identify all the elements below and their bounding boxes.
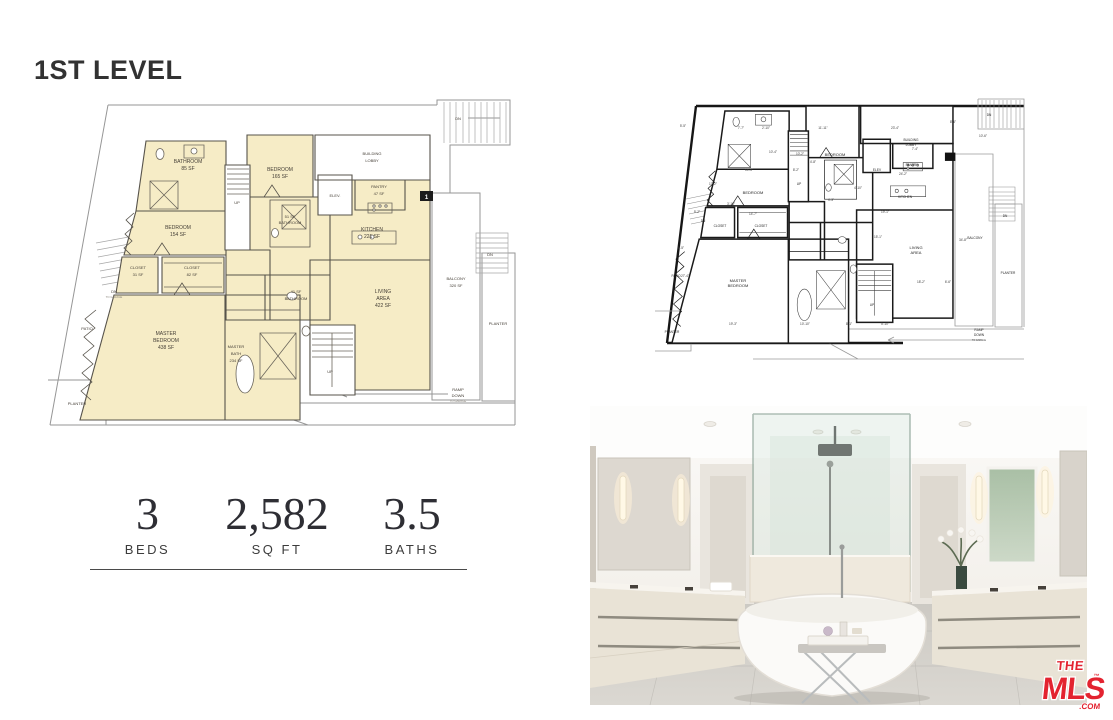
dimension-label: 24'-2" [899, 172, 907, 176]
svg-text:BATHROOM: BATHROOM [285, 296, 308, 301]
dimension-label: 6'-6" [945, 280, 951, 284]
sqft-value: 2,582 [198, 490, 356, 538]
floorplan-first-level: BATHROOM 85 SF BEDROOM 165 SF BEDROOM 15… [38, 93, 533, 468]
dimension-label: 8'-6" [950, 120, 956, 124]
stat-baths: 3.5 BATHS [352, 490, 472, 557]
svg-text:PLANTER: PLANTER [665, 330, 680, 334]
dimension-label: 4'-10" [854, 186, 862, 190]
dimension-label: 14'-7" [749, 212, 757, 216]
beds-label: BEDS [90, 542, 205, 557]
svg-text:TO GARAGE: TO GARAGE [972, 339, 987, 342]
baths-label: BATHS [352, 542, 472, 557]
svg-text:UP: UP [870, 303, 874, 307]
towel [710, 582, 732, 591]
dimension-label: 5'-10" [881, 322, 889, 326]
svg-text:PATIO: PATIO [671, 274, 681, 278]
svg-text:AREA: AREA [376, 296, 390, 302]
svg-text:154 SF: 154 SF [170, 232, 186, 238]
window [988, 468, 1036, 563]
svg-text:PANTRY: PANTRY [906, 163, 920, 167]
dimension-label: 5'-2" [694, 210, 700, 214]
beds-value: 3 [90, 490, 205, 538]
right-mirror [1060, 451, 1087, 576]
svg-text:CLOSET: CLOSET [714, 224, 727, 228]
dimension-label: 8'-2" [793, 168, 799, 172]
svg-text:DN: DN [487, 252, 493, 257]
tub-rim [746, 597, 918, 623]
svg-text:DN: DN [987, 113, 992, 117]
divider-line [90, 569, 467, 570]
sqft-label: SQ FT [198, 542, 356, 557]
left-doorway-inner [710, 476, 746, 598]
svg-text:KITCHEN: KITCHEN [361, 227, 383, 233]
svg-text:BUILDING: BUILDING [363, 151, 382, 156]
stat-beds: 3 BEDS [90, 490, 205, 557]
svg-text:CLOSET: CLOSET [755, 224, 768, 228]
svg-text:PLANTER: PLANTER [68, 401, 87, 406]
svg-text:ELEV: ELEV [873, 168, 882, 172]
svg-text:BEDROOM: BEDROOM [267, 167, 293, 173]
svg-text:MASTER: MASTER [156, 331, 177, 337]
svg-text:RAMP: RAMP [974, 328, 983, 332]
svg-text:BATHROOM: BATHROOM [279, 220, 302, 225]
dimension-label: 8'-5" [678, 246, 684, 250]
baths-value: 3.5 [352, 490, 472, 538]
svg-text:BUILDING: BUILDING [903, 138, 919, 142]
dimension-label: 19'-3" [729, 322, 737, 326]
svg-text:BEDROOM: BEDROOM [728, 283, 749, 288]
dimension-label: 10'-4" [769, 150, 777, 154]
svg-text:PATIO: PATIO [81, 326, 92, 331]
dimension-label: 7'-7" [738, 126, 744, 130]
svg-text:RAMP: RAMP [452, 387, 464, 392]
svg-text:DN: DN [1003, 214, 1008, 218]
logo-tm: ™ [1093, 673, 1100, 680]
svg-text:320 SF: 320 SF [450, 283, 463, 288]
svg-text:KITCHEN: KITCHEN [898, 195, 913, 199]
svg-text:DN: DN [701, 219, 706, 223]
dimension-label: 14'-5" [745, 168, 753, 172]
svg-text:234 SF: 234 SF [230, 358, 243, 363]
svg-text:PLANTER: PLANTER [489, 321, 508, 326]
svg-text:AREA: AREA [911, 250, 922, 255]
page-title: 1ST LEVEL [34, 55, 183, 86]
svg-text:UP: UP [797, 182, 801, 186]
svg-text:BEDROOM: BEDROOM [165, 225, 191, 231]
svg-text:ELEV.: ELEV. [330, 193, 341, 198]
svg-text:BEDROOM: BEDROOM [743, 190, 764, 195]
dimension-label: 4'-8" [810, 160, 816, 164]
svg-text:BALCONY: BALCONY [446, 276, 465, 281]
floorplan-technical: 5'-5"7'-7"2'-10"11'-11"23'-4"8'-6"10'-6"… [653, 93, 1050, 380]
dimension-label: 4'-3" [828, 198, 834, 202]
svg-text:165 SF: 165 SF [272, 174, 288, 180]
dimension-label: 8'-1" [846, 322, 852, 326]
svg-text:51 SF: 51 SF [285, 214, 296, 219]
svg-text:CLOSET: CLOSET [130, 265, 147, 270]
dimension-label: 15'-1" [874, 235, 882, 239]
svg-text:LIVING: LIVING [375, 289, 392, 295]
svg-text:DN: DN [455, 116, 461, 121]
svg-text:41 SF: 41 SF [291, 289, 302, 294]
listing-sheet: 1ST LEVEL [0, 0, 1113, 720]
rain-shower-head [818, 444, 852, 456]
svg-text:47 SF: 47 SF [374, 191, 385, 196]
svg-text:31 SF: 31 SF [133, 272, 144, 277]
dimension-label: 5'-5" [680, 124, 686, 128]
unit-walls [80, 135, 433, 420]
svg-text:TO GARAGE: TO GARAGE [450, 399, 467, 403]
svg-text:BATHROOM: BATHROOM [174, 159, 203, 165]
svg-text:PLANTER: PLANTER [1001, 271, 1016, 275]
dimension-label: 7'-4" [912, 147, 918, 151]
svg-text:UP: UP [234, 200, 240, 205]
svg-text:TO GARAGE: TO GARAGE [106, 295, 123, 299]
svg-text:422 SF: 422 SF [375, 303, 391, 309]
svg-text:DOWN: DOWN [452, 393, 465, 398]
svg-text:85 SF: 85 SF [181, 166, 194, 172]
bathroom-photo [590, 406, 1087, 705]
svg-text:82 SF: 82 SF [187, 272, 198, 277]
svg-text:BALCONY: BALCONY [967, 236, 983, 240]
svg-text:DN: DN [111, 289, 117, 294]
svg-text:BEDROOM: BEDROOM [153, 338, 179, 344]
dimension-label: 19'-1" [881, 210, 889, 214]
dimension-label: 10'-2" [796, 152, 804, 156]
svg-text:PANTRY: PANTRY [371, 184, 387, 189]
svg-text:DOWN: DOWN [974, 333, 985, 337]
svg-text:MASTER: MASTER [228, 344, 245, 349]
svg-text:BEDROOM: BEDROOM [825, 152, 846, 157]
dimension-label: 10'-10" [800, 322, 810, 326]
dimension-label: 27'-4" [681, 274, 689, 278]
svg-text:BATH: BATH [231, 351, 241, 356]
dimension-label: 18'-2" [917, 280, 925, 284]
dimension-label: 2'-10" [762, 126, 770, 130]
dimension-label: 11'-11" [818, 126, 827, 130]
dimension-label: 10'-6" [979, 134, 987, 138]
stat-sqft: 2,582 SQ FT [198, 490, 356, 557]
dimension-label: 17'-2" [709, 182, 717, 186]
dimension-label: 23'-4" [891, 126, 899, 130]
svg-text:UP: UP [327, 369, 333, 374]
logo-com: .COM [1079, 702, 1101, 711]
svg-text:LOBBY: LOBBY [365, 158, 379, 163]
svg-text:LOBBY: LOBBY [906, 143, 918, 147]
svg-text:221 SF: 221 SF [364, 234, 380, 240]
mls-logo: THE MLS .COM ™ [1022, 652, 1106, 714]
dimension-label: 34'-8" [959, 238, 967, 242]
svg-text:CLOSET: CLOSET [184, 265, 201, 270]
dimension-label: 3'-10" [727, 202, 735, 206]
svg-text:438 SF: 438 SF [158, 345, 174, 351]
